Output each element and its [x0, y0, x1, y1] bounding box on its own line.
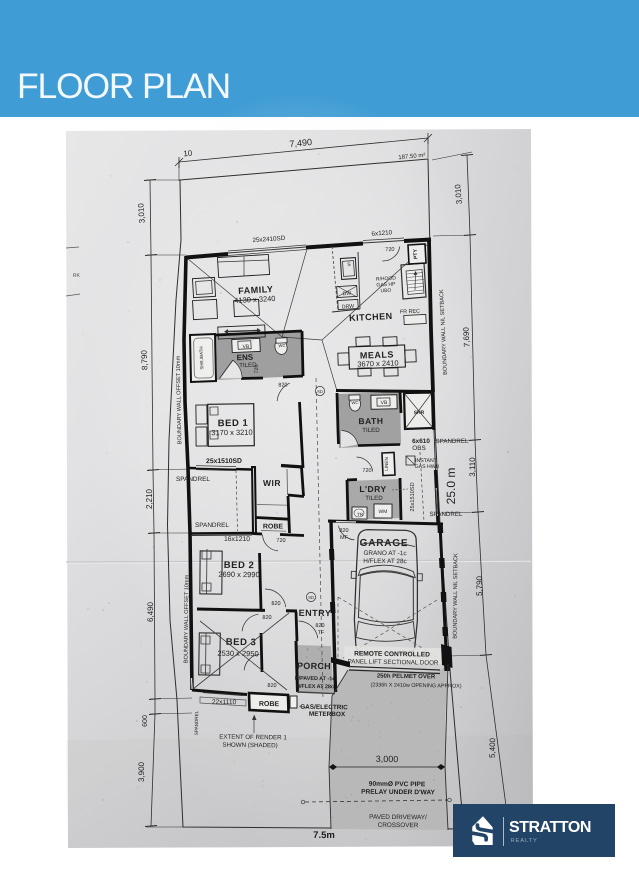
svg-text:UBO: UBO — [380, 288, 391, 295]
svg-text:KITCHEN: KITCHEN — [349, 311, 393, 323]
svg-text:TILED: TILED — [365, 495, 383, 502]
svg-text:25x1510SD: 25x1510SD — [206, 458, 242, 465]
svg-text:PTY: PTY — [413, 248, 420, 259]
svg-text:250h PELMET OVER: 250h PELMET OVER — [377, 674, 436, 681]
svg-text:TF: TF — [318, 630, 325, 636]
svg-text:SPANDREL: SPANDREL — [194, 710, 199, 735]
svg-text:720: 720 — [385, 247, 395, 254]
svg-text:3170 x 3210: 3170 x 3210 — [211, 428, 252, 437]
svg-text:ROBE: ROBE — [263, 523, 284, 530]
svg-text:RK: RK — [73, 273, 81, 279]
svg-text:PRELAY UNDER D'WAY: PRELAY UNDER D'WAY — [361, 789, 436, 797]
svg-text:820: 820 — [267, 683, 276, 689]
svg-text:PANEL LIFT SECTIONAL DOOR: PANEL LIFT SECTIONAL DOOR — [348, 658, 439, 666]
svg-text:GRANO AT -1c: GRANO AT -1c — [363, 550, 407, 557]
svg-text:2,210: 2,210 — [145, 488, 154, 509]
svg-text:720: 720 — [362, 468, 371, 474]
svg-text:10: 10 — [183, 149, 193, 159]
svg-text:WC: WC — [278, 343, 285, 348]
svg-text:7,490: 7,490 — [289, 137, 312, 149]
svg-text:7.5m: 7.5m — [313, 830, 335, 841]
svg-text:SHOWN (SHADED): SHOWN (SHADED) — [222, 742, 277, 750]
svg-text:SPANDREL: SPANDREL — [435, 438, 469, 445]
svg-text:REMOTE CONTROLLED: REMOTE CONTROLLED — [354, 650, 430, 658]
svg-text:ENTRY: ENTRY — [299, 608, 332, 618]
svg-text:EXTENT OF RENDER 1: EXTENT OF RENDER 1 — [219, 734, 287, 742]
svg-text:3,110: 3,110 — [468, 457, 477, 477]
svg-text:3,010: 3,010 — [136, 202, 147, 223]
svg-text:BOUNDARY WALL NIL SETBACK: BOUNDARY WALL NIL SETBACK — [453, 553, 460, 639]
svg-text:DW: DW — [342, 291, 351, 297]
svg-text:5,790: 5,790 — [475, 575, 484, 596]
svg-text:LINEN: LINEN — [384, 457, 389, 471]
svg-text:VB: VB — [381, 400, 388, 406]
svg-text:SHR./BATH: SHR./BATH — [199, 346, 205, 369]
svg-text:6,490: 6,490 — [146, 601, 155, 622]
svg-text:WM: WM — [379, 509, 388, 515]
svg-text:SPANDREL: SPANDREL — [430, 511, 463, 518]
svg-text:WC: WC — [351, 400, 358, 405]
svg-text:SPANDREL: SPANDREL — [195, 522, 229, 529]
svg-text:GAS HWU: GAS HWU — [415, 464, 440, 470]
svg-text:H/FLEX AT 28c: H/FLEX AT 28c — [363, 558, 407, 565]
svg-text:820: 820 — [262, 615, 271, 621]
svg-text:TILED: TILED — [362, 427, 380, 434]
svg-text:PAVED DRIVEWAY/: PAVED DRIVEWAY/ — [369, 814, 427, 821]
svg-text:6x1210: 6x1210 — [371, 229, 393, 237]
svg-text:BATH: BATH — [358, 416, 383, 426]
svg-text:METERBOX: METERBOX — [309, 711, 346, 718]
svg-text:5,400: 5,400 — [488, 737, 497, 758]
svg-text:SHR: SHR — [414, 410, 425, 416]
svg-text:ROBE: ROBE — [259, 701, 280, 708]
svg-text:25.0 m: 25.0 m — [444, 468, 458, 505]
svg-text:7,690: 7,690 — [462, 326, 472, 347]
svg-text:3,900: 3,900 — [137, 761, 146, 782]
svg-text:FR REC: FR REC — [400, 308, 420, 315]
svg-text:90mmØ PVC PIPE: 90mmØ PVC PIPE — [369, 781, 426, 789]
svg-text:720: 720 — [276, 538, 285, 544]
svg-text:820: 820 — [315, 623, 324, 629]
svg-text:VB: VB — [243, 344, 251, 350]
svg-text:SPANDREL: SPANDREL — [176, 476, 210, 483]
svg-text:DRW: DRW — [342, 304, 355, 311]
svg-text:3,010: 3,010 — [453, 183, 464, 204]
svg-text:600: 600 — [142, 715, 149, 727]
svg-text:25x1510SD: 25x1510SD — [410, 482, 416, 511]
svg-text:16x1210: 16x1210 — [224, 536, 250, 543]
svg-text:CROSSOVER: CROSSOVER — [378, 822, 419, 829]
svg-text:H/FLEX AT 28c: H/FLEX AT 28c — [296, 684, 334, 691]
svg-text:3,000: 3,000 — [376, 754, 399, 764]
svg-text:TR: TR — [357, 512, 364, 517]
svg-text:WIR: WIR — [263, 478, 281, 488]
svg-text:SD: SD — [317, 389, 323, 394]
svg-text:L'DRY: L'DRY — [359, 484, 386, 494]
svg-text:8,790: 8,790 — [140, 349, 150, 370]
svg-text:ENS: ENS — [237, 353, 254, 363]
svg-text:2690 x 2990: 2690 x 2990 — [218, 570, 259, 579]
svg-text:3670 x 2410: 3670 x 2410 — [357, 358, 399, 368]
svg-text:720: 720 — [254, 364, 260, 373]
svg-text:820: 820 — [271, 601, 280, 607]
svg-text:22x1110: 22x1110 — [212, 699, 237, 706]
svg-text:OBS: OBS — [412, 445, 426, 452]
svg-text:SD: SD — [308, 595, 314, 600]
svg-text:PORCH: PORCH — [297, 661, 331, 672]
